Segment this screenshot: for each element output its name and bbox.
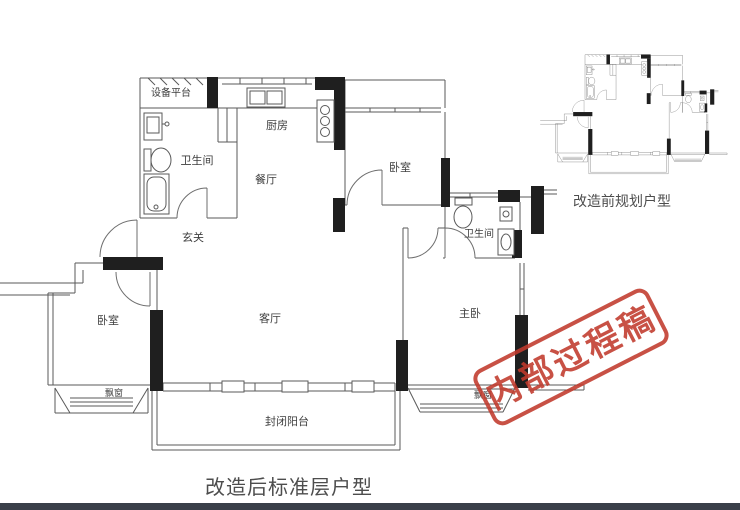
mini-floorplan-drawing bbox=[540, 54, 727, 173]
bathroom1-sink-icon bbox=[144, 113, 169, 140]
room-label-bedroom-top: 卧室 bbox=[389, 160, 411, 174]
room-label-living: 客厅 bbox=[259, 311, 281, 325]
kitchen-sink-icon bbox=[247, 88, 285, 107]
room-label-entry: 玄关 bbox=[182, 230, 204, 244]
main-plan-caption: 改造后标准层户型 bbox=[205, 476, 373, 499]
bathroom2-basin-icon bbox=[498, 207, 514, 255]
room-label-kitchen: 厨房 bbox=[266, 119, 288, 132]
bathroom2-toilet-icon bbox=[454, 198, 472, 228]
mini-plan-caption: 改造前规划户型 bbox=[573, 193, 671, 209]
room-label-bedroom-left: 卧室 bbox=[97, 313, 119, 327]
approval-stamp: 内部过程稿 bbox=[472, 288, 669, 427]
floorplan-image: 设备平台 卫生间 厨房 餐厅 玄关 客厅 卧室 卫生间 主卧 卧室 飘窗 飘窗 … bbox=[0, 0, 740, 510]
bathroom1-bathtub-icon bbox=[144, 174, 169, 214]
bathroom1-toilet-icon bbox=[144, 148, 171, 172]
room-label-balcony: 封闭阳台 bbox=[265, 414, 309, 428]
room-label-bay-left: 飘窗 bbox=[105, 387, 123, 398]
room-label-equipment-platform: 设备平台 bbox=[151, 86, 191, 99]
bottom-bar bbox=[0, 503, 740, 510]
room-label-bathroom1: 卫生间 bbox=[181, 153, 214, 167]
room-label-master: 主卧 bbox=[459, 307, 481, 320]
room-label-dining: 餐厅 bbox=[255, 172, 277, 186]
mini-floorplan: 改造前规划户型 bbox=[540, 54, 727, 209]
room-label-bathroom2: 卫生间 bbox=[464, 227, 494, 240]
stove-icon bbox=[317, 100, 334, 142]
